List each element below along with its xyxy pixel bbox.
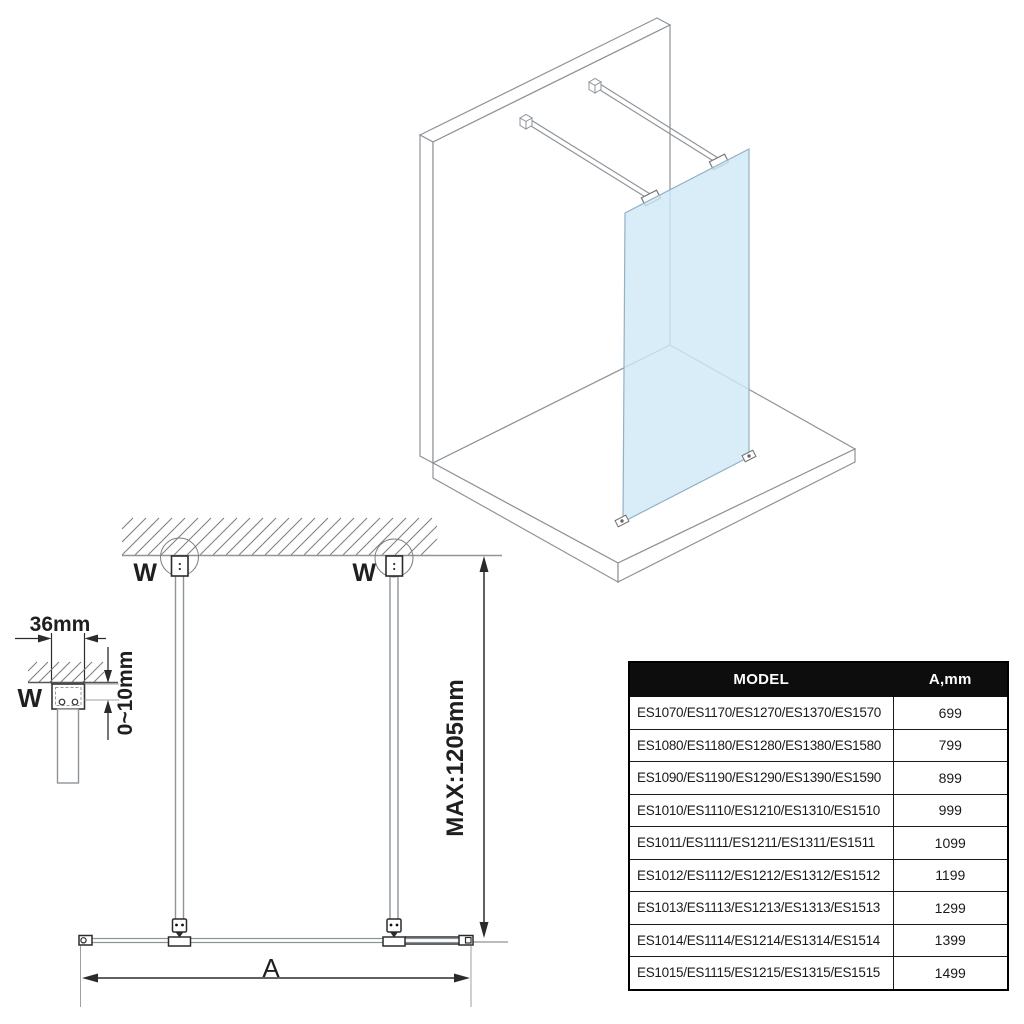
ceiling-bracket-right	[386, 556, 403, 576]
wall-end-face	[420, 135, 433, 463]
rod-clamp-left	[169, 919, 191, 946]
ceiling-hatch	[122, 518, 437, 555]
model-cell: ES1015/ES1115/ES1215/ES1315/ES1515	[629, 957, 893, 990]
glass-top-bar	[91, 937, 508, 944]
ceiling-bracket-left	[172, 556, 189, 576]
wall-bracket-1	[520, 115, 532, 130]
gap-label: 0~10mm	[114, 651, 137, 736]
table-row: ES1015/ES1115/ES1215/ES1315/ES15151499	[629, 957, 1008, 990]
model-column-header: MODEL	[629, 662, 893, 697]
detail-ceiling-hatch	[28, 662, 104, 682]
a-mm-cell: 899	[893, 762, 1008, 795]
model-cell: ES1070/ES1170/ES1270/ES1370/ES1570	[629, 697, 893, 730]
model-cell: ES1011/ES1111/ES1211/ES1311/ES1511	[629, 827, 893, 860]
table-row: ES1080/ES1180/ES1280/ES1380/ES1580799	[629, 729, 1008, 762]
a-mm-cell: 1399	[893, 924, 1008, 957]
profile-width-label: 36mm	[30, 613, 91, 636]
installation-drawing-page: A MAX:1205mm W W 36mm W	[0, 0, 1024, 1024]
isometric-view	[420, 18, 855, 582]
wall-label-right: W	[352, 559, 376, 587]
rod-clamp-right	[383, 919, 405, 946]
support-rod-left	[176, 576, 184, 920]
model-cell: ES1080/ES1180/ES1280/ES1380/ES1580	[629, 729, 893, 762]
table-row: ES1070/ES1170/ES1270/ES1370/ES1570699	[629, 697, 1008, 730]
detail-bracket	[52, 684, 85, 709]
a-mm-cell: 699	[893, 697, 1008, 730]
a-mm-column-header: A,mm	[893, 662, 1008, 697]
glass-panel	[623, 149, 749, 522]
bar-end-cap-left	[79, 936, 92, 946]
detail-rod	[58, 709, 79, 783]
dimension-a: A	[81, 946, 472, 1007]
model-cell: ES1012/ES1112/ES1212/ES1312/ES1512	[629, 859, 893, 892]
front-view: A MAX:1205mm W W	[79, 518, 508, 1007]
table-row: ES1012/ES1112/ES1212/ES1312/ES15121199	[629, 859, 1008, 892]
max-height-label: MAX:1205mm	[442, 679, 469, 836]
a-mm-cell: 1099	[893, 827, 1008, 860]
support-rod-right	[390, 576, 398, 920]
dimension-36mm	[15, 633, 106, 684]
wall-bracket-2	[589, 79, 601, 94]
a-mm-cell: 1499	[893, 957, 1008, 990]
dimension-gap: 0~10mm	[85, 647, 138, 740]
table-row: ES1090/ES1190/ES1290/ES1390/ES1590899	[629, 762, 1008, 795]
dimension-max-height: MAX:1205mm	[442, 556, 489, 938]
width-a-label: A	[262, 953, 280, 983]
wall-label-left: W	[133, 559, 157, 587]
model-cell: ES1013/ES1113/ES1213/ES1313/ES1513	[629, 892, 893, 925]
table-header-row: MODEL A,mm	[629, 662, 1008, 697]
model-cell: ES1010/ES1110/ES1210/ES1310/ES1510	[629, 794, 893, 827]
table-row: ES1013/ES1113/ES1213/ES1313/ES15131299	[629, 892, 1008, 925]
table-row: ES1010/ES1110/ES1210/ES1310/ES1510999	[629, 794, 1008, 827]
model-cell: ES1090/ES1190/ES1290/ES1390/ES1590	[629, 762, 893, 795]
a-mm-cell: 1299	[893, 892, 1008, 925]
detail-wall-label: W	[17, 683, 42, 713]
model-cell: ES1014/ES1114/ES1214/ES1314/ES1514	[629, 924, 893, 957]
table-row: ES1011/ES1111/ES1211/ES1311/ES15111099	[629, 827, 1008, 860]
a-mm-cell: 799	[893, 729, 1008, 762]
a-mm-cell: 999	[893, 794, 1008, 827]
a-mm-cell: 1199	[893, 859, 1008, 892]
detail-view: 36mm W 0~10mm	[15, 613, 137, 783]
bar-end-cap-right	[459, 936, 473, 946]
model-size-table: MODEL A,mm ES1070/ES1170/ES1270/ES1370/E…	[628, 661, 1009, 991]
table-row: ES1014/ES1114/ES1214/ES1314/ES15141399	[629, 924, 1008, 957]
